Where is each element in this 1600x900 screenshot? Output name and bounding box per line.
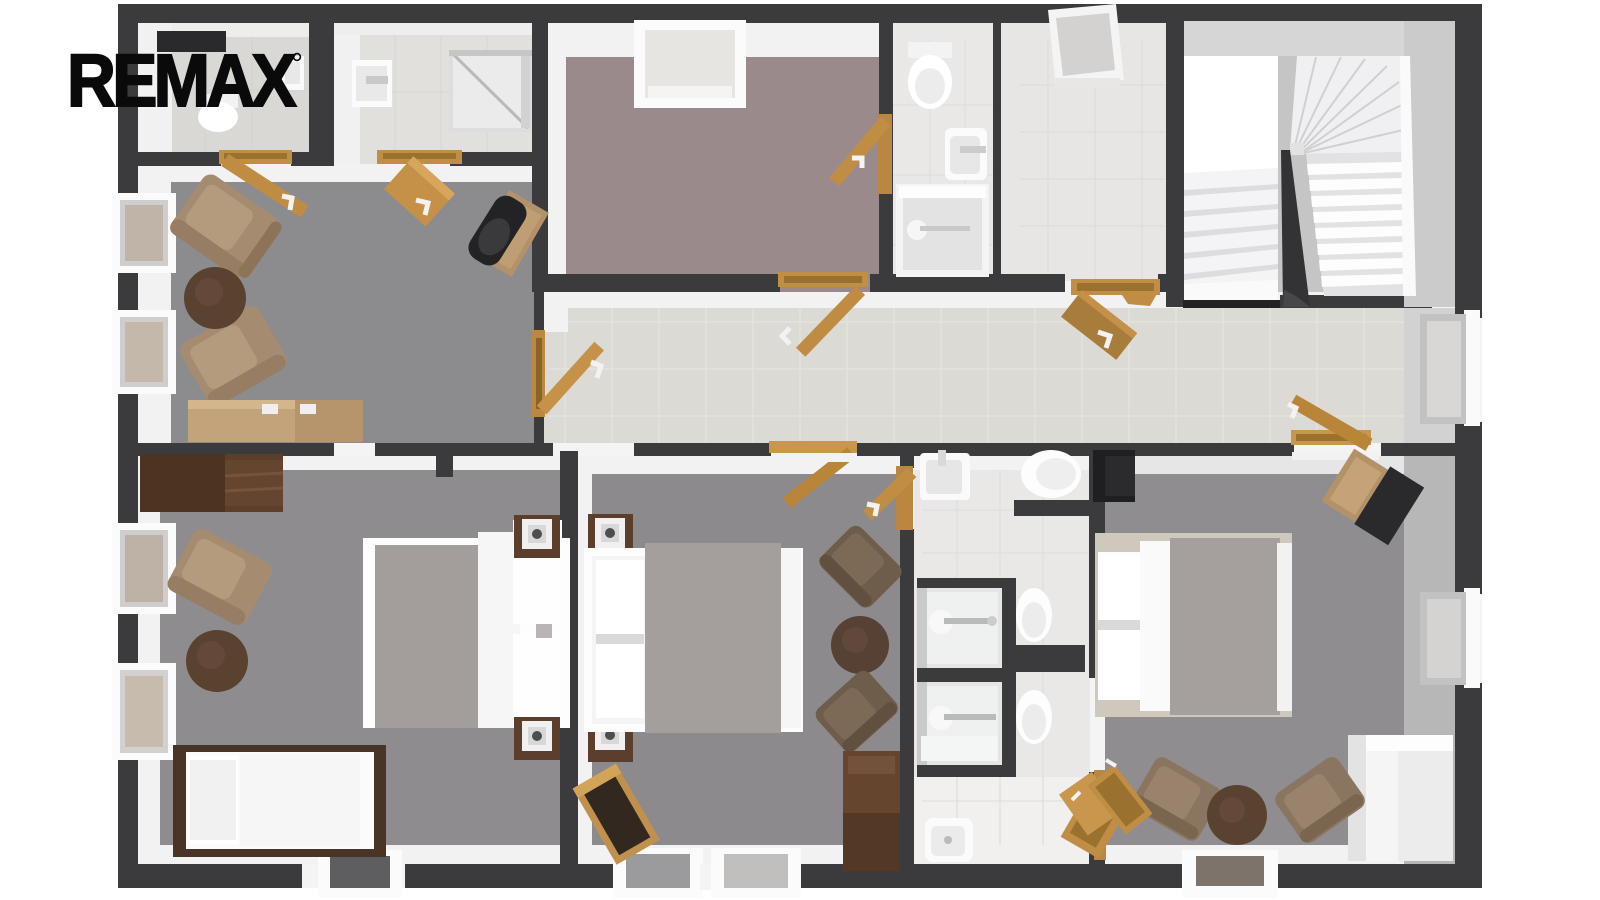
svg-text:REMAX: REMAX <box>67 39 296 122</box>
